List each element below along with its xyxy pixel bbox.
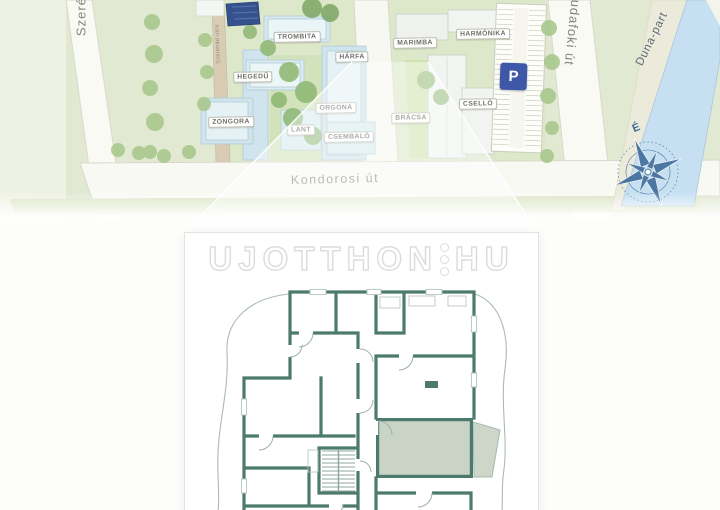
site-map: Kondorosi út Szerémi út Budafoki út Szer… xyxy=(0,0,720,218)
staircase xyxy=(322,450,355,492)
floor-plan-card: UJOTTHON HU xyxy=(184,232,539,510)
site-plan-image: Kondorosi út Szerémi út Budafoki út Szer… xyxy=(0,0,720,510)
building-label-hegedu: HEGEDŰ xyxy=(233,71,273,83)
highlighted-unit xyxy=(378,420,500,477)
map-building-labels: TROMBITAHÁRFAMARIMBAHARMÓNIKAHEGEDŰZONGO… xyxy=(0,0,720,218)
building-label-orgona: ORGONA xyxy=(315,102,356,114)
parking-sign: P xyxy=(500,63,528,91)
building-label-bracsa: BRÁCSA xyxy=(391,112,431,124)
building-label-lant: LANT xyxy=(287,124,315,135)
building-label-csello: CSELLÓ xyxy=(459,98,497,110)
building-label-marimba: MARIMBA xyxy=(393,37,437,49)
watermark: UJOTTHON HU xyxy=(185,240,538,278)
building-label-zongora: ZONGORA xyxy=(208,116,254,128)
highlighted-unit-balcony xyxy=(473,422,500,477)
plan-marker xyxy=(425,381,438,388)
watermark-colon-dots-icon xyxy=(440,243,449,276)
building-label-trombita: TROMBITA xyxy=(274,31,321,43)
watermark-text-left: UJOTTHON xyxy=(208,240,438,278)
building-label-harmonika: HARMÓNIKA xyxy=(456,28,510,40)
watermark-text-right: HU xyxy=(455,240,515,278)
building-label-harfa: HÁRFA xyxy=(335,51,369,63)
building-label-csembalo: CSEMBALÓ xyxy=(324,131,374,143)
